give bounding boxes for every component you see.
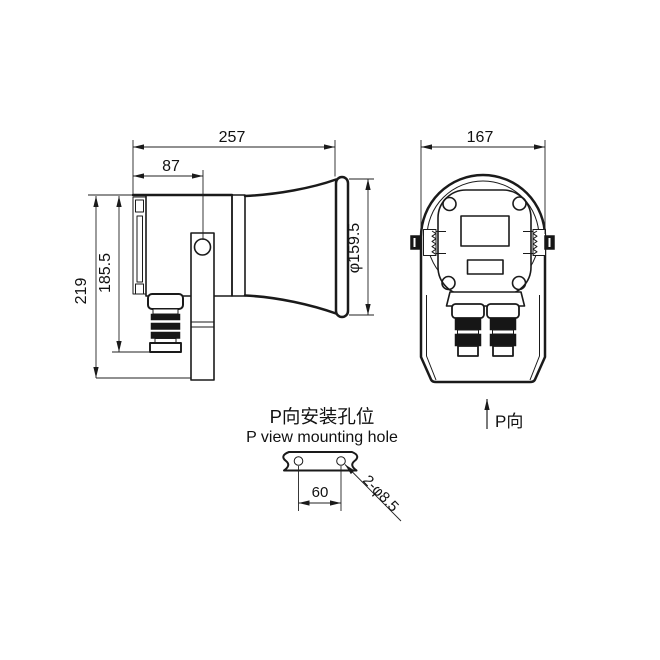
rear-view: 167 P向 [411, 129, 555, 431]
horn-bell [245, 177, 348, 317]
mounting-hole-detail: P向安装孔位 P view mounting hole 60 2-φ8.5 [246, 406, 402, 521]
detail-title-cn: P向安装孔位 [270, 406, 375, 427]
p-direction-label: P向 [495, 412, 523, 431]
view-direction: P向 [487, 399, 523, 431]
horn-throat [232, 195, 245, 296]
technical-drawing: 257 87 219 185.5 φ159.5 [0, 0, 660, 660]
detail-title-en: P view mounting hole [246, 429, 398, 446]
dim-bracket-hole-offset: 87 [162, 158, 180, 175]
dim-rear-width: 167 [467, 129, 494, 146]
dim-mouth-diameter: φ159.5 [346, 223, 363, 274]
drawing-canvas: 257 87 219 185.5 φ159.5 [0, 0, 660, 660]
cable-gland-side [148, 294, 183, 352]
dim-holes-note: 2-φ8.5 [359, 472, 402, 515]
side-view-dimensions: 257 87 219 185.5 φ159.5 [73, 129, 374, 378]
horn-body [133, 195, 245, 296]
dim-hole-spacing: 60 [312, 484, 329, 501]
cover-slot [137, 216, 143, 282]
rear-plate [438, 190, 531, 295]
mounting-strap [191, 233, 214, 380]
dim-overall-height: 219 [73, 278, 90, 305]
dim-height-to-gland: 185.5 [97, 253, 114, 293]
dim-overall-length: 257 [219, 129, 246, 146]
side-view: 257 87 219 185.5 φ159.5 [73, 129, 374, 380]
